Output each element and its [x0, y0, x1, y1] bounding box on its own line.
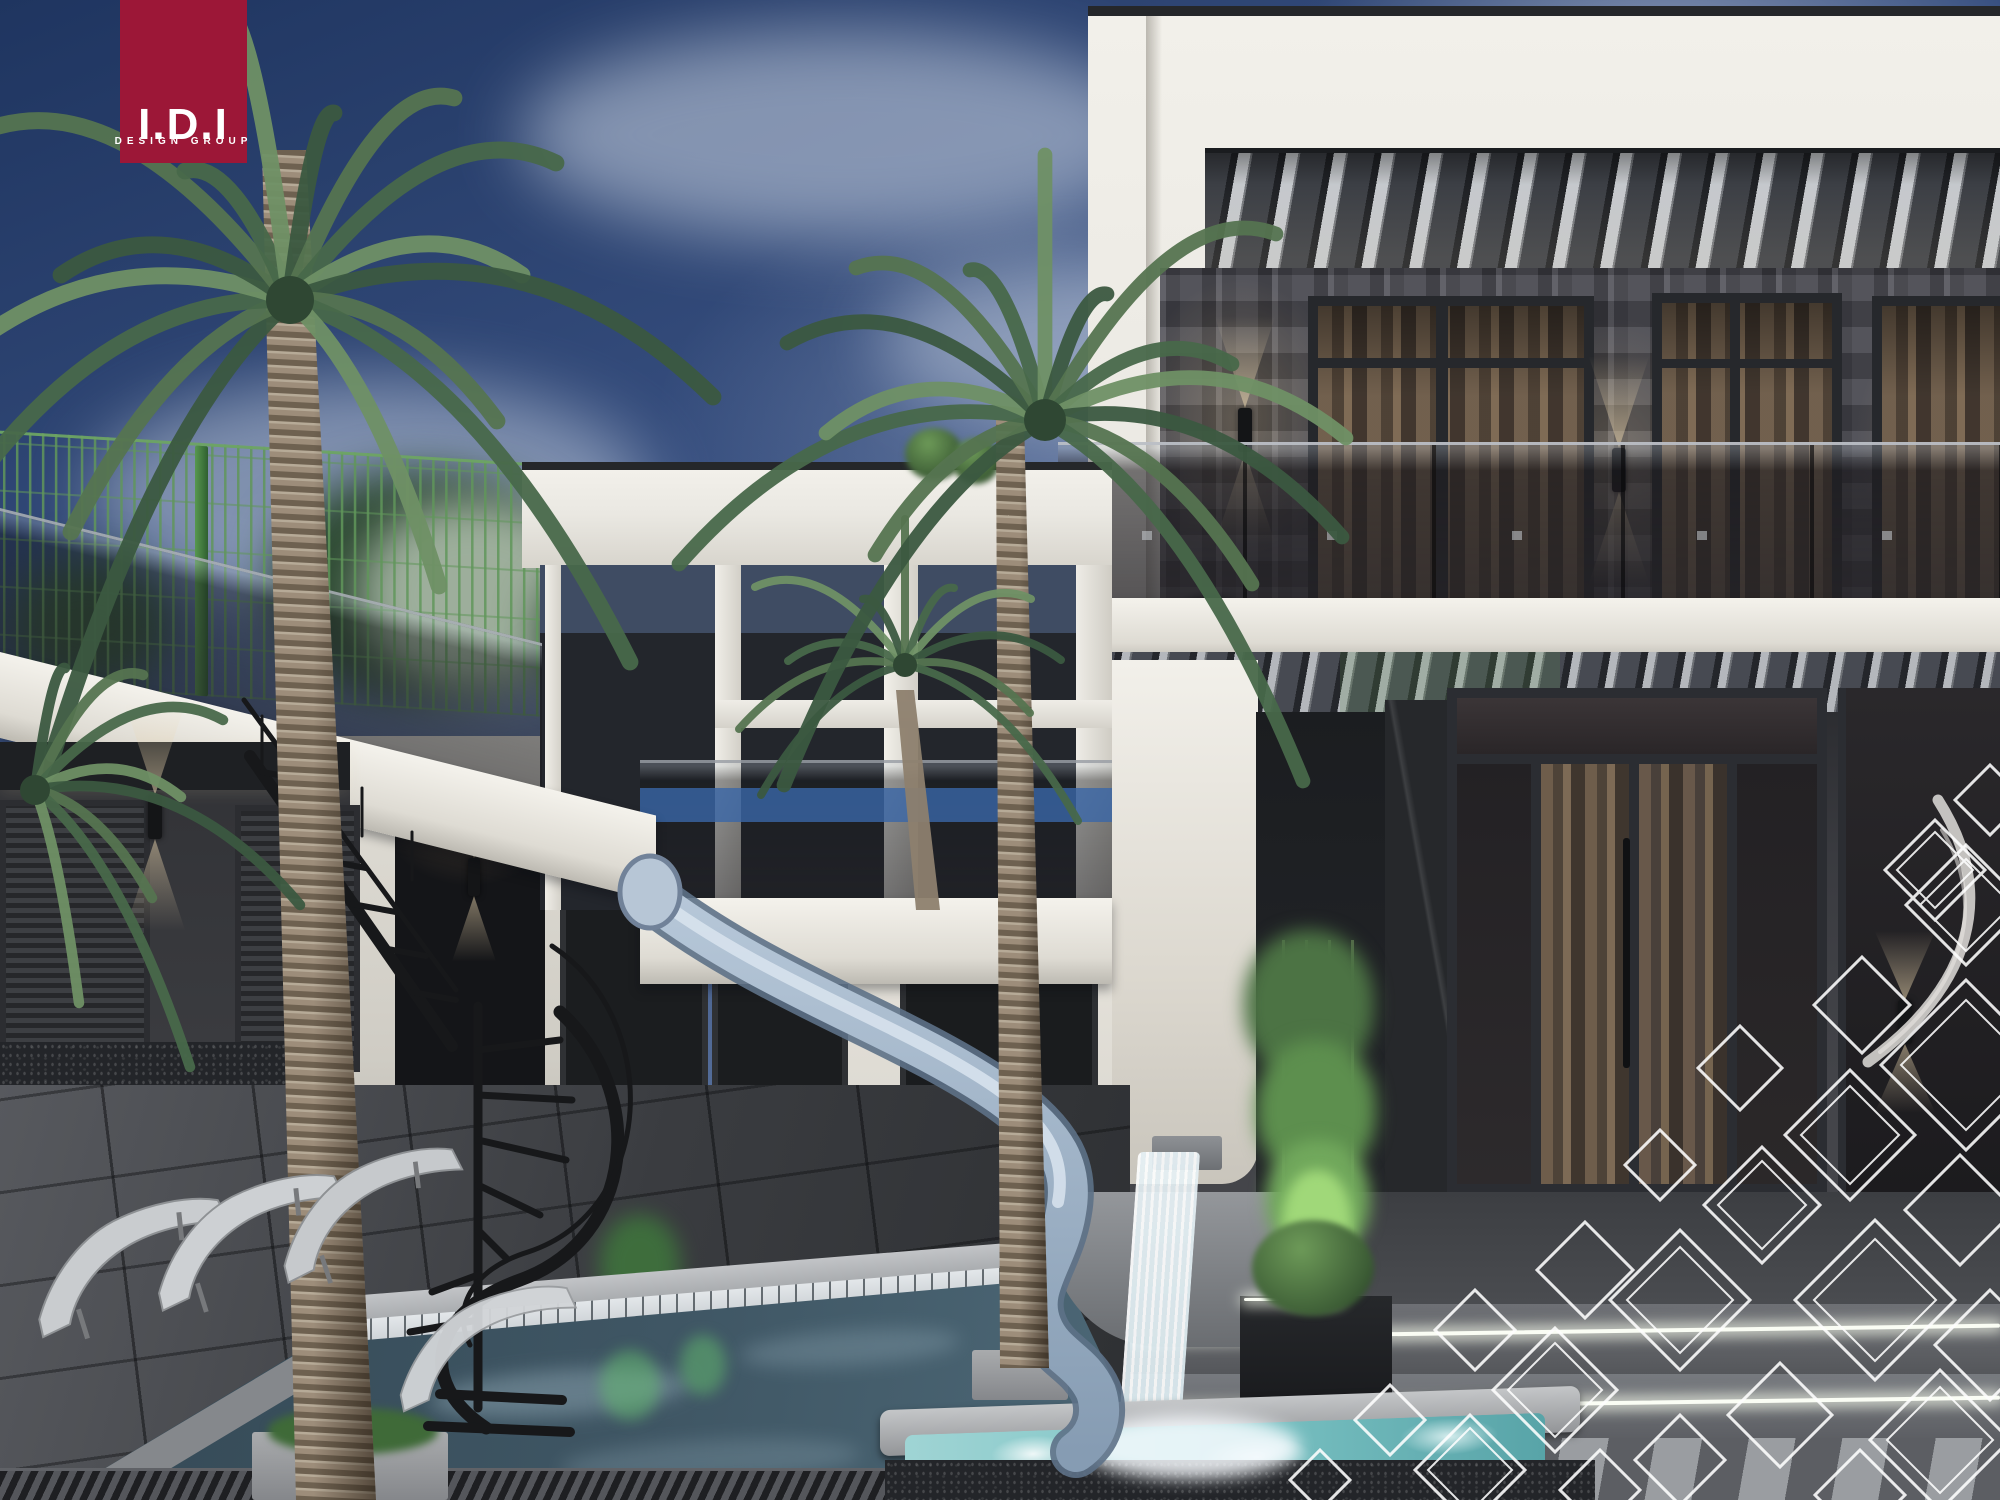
villa-exterior-render: I.D.I DESIGN GROUP: [0, 0, 2000, 1500]
palm-trunk-shade: [262, 150, 376, 1500]
logo-subtitle: DESIGN GROUP: [115, 136, 253, 147]
scene-overlay: [0, 0, 2000, 1500]
palm-crown-left: [0, 6, 713, 754]
palm-trunk-small: [896, 690, 940, 910]
idi-logo: I.D.I DESIGN GROUP: [120, 0, 247, 163]
slide-hub: [620, 856, 680, 928]
palm-crown-left-low: [20, 668, 300, 1067]
palm-trunk-shade: [996, 420, 1049, 1368]
diamond-watermark: [1290, 765, 2000, 1500]
